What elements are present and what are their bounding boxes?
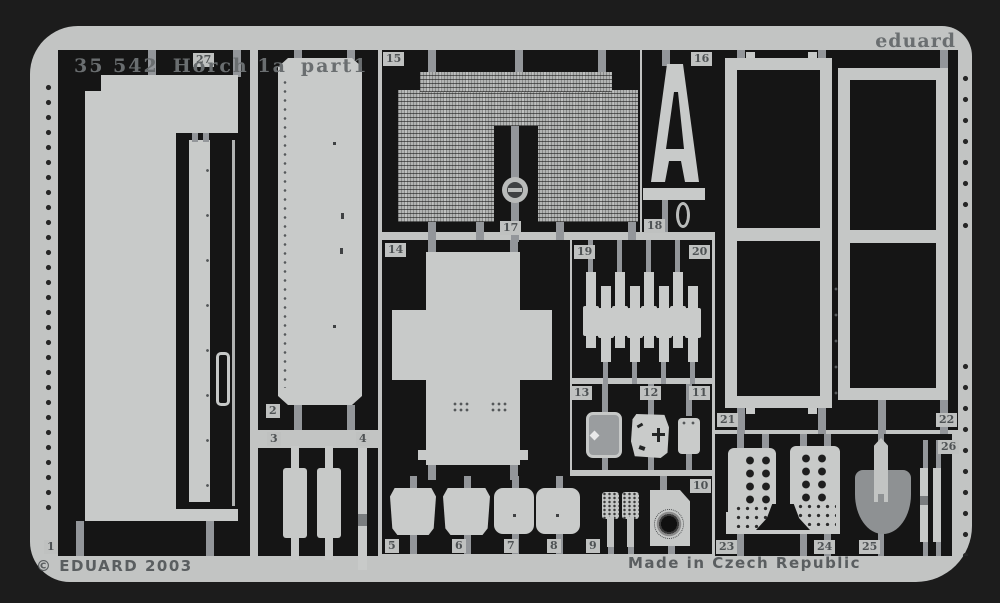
part-8-seat-pad xyxy=(536,488,580,534)
part-number-label-9: 9 xyxy=(586,539,600,553)
part-10-horn-plate xyxy=(650,490,690,546)
part-5-seat-pad xyxy=(390,488,436,535)
part-number-label-26: 26 xyxy=(938,440,959,454)
part-number-label-25: 25 xyxy=(859,540,880,554)
edge-rivets-left xyxy=(43,80,54,516)
part-3-cylinder-a xyxy=(283,468,307,538)
part-13-diamond-mark xyxy=(590,431,600,441)
part-number-label-10: 10 xyxy=(690,479,711,493)
part-26-strip-b xyxy=(933,468,941,542)
part-number-label-23: 23 xyxy=(716,540,737,554)
part-number-label-19: 19 xyxy=(574,245,595,259)
part-10-rivet-ring xyxy=(654,509,684,539)
edge-rivets-right-top xyxy=(960,68,971,230)
part-2-panel xyxy=(278,58,362,405)
part-2-rivet-marks xyxy=(282,78,288,388)
part-number-label-7: 7 xyxy=(504,539,518,553)
part-14-etch-marks-b xyxy=(490,401,508,413)
part-number-label-24: 24 xyxy=(814,540,835,554)
part-22-crossbar xyxy=(838,230,948,243)
part-21-crossbar xyxy=(725,228,832,241)
part-number-label-15: 15 xyxy=(383,52,404,66)
part-14-etch-marks-a xyxy=(452,401,470,413)
part-number-label-4: 4 xyxy=(356,432,370,446)
sheet: 35 542Horch 1apart1 eduard © EDUARD 2003… xyxy=(30,26,972,582)
product-part: part1 xyxy=(301,55,369,77)
edge-rivets-right-bottom xyxy=(960,356,971,556)
part-number-label-17: 17 xyxy=(500,221,521,235)
part-number-label-3: 3 xyxy=(267,432,281,446)
part-4-strip xyxy=(358,448,367,570)
brand-logo: eduard xyxy=(875,30,956,52)
part-number-label-22: 22 xyxy=(936,413,957,427)
part-16-a-frame xyxy=(648,64,702,188)
part-number-label-8: 8 xyxy=(547,539,561,553)
part-6-seat-pad xyxy=(443,488,490,535)
part-number-label-2: 2 xyxy=(266,404,280,418)
part-3-cylinder-b xyxy=(317,468,341,538)
part-25-pin-shadow xyxy=(878,494,884,518)
part-14-panel-arms xyxy=(392,310,552,380)
part-1-slot-sliver xyxy=(232,140,235,506)
part-number-label-6: 6 xyxy=(452,539,466,553)
part-number-label-12: 12 xyxy=(640,386,661,400)
part-number-label-11: 11 xyxy=(689,386,710,400)
fret-title: 35 542Horch 1apart1 xyxy=(74,55,383,77)
part-16-base-bar xyxy=(643,188,705,200)
part-17-disc-slot xyxy=(508,188,522,192)
frame-etch-marks xyxy=(833,276,839,406)
part-number-label-5: 5 xyxy=(385,539,399,553)
part-9-paddle-a xyxy=(602,492,619,519)
part-number-label-18: 18 xyxy=(644,219,665,233)
part-11-plate xyxy=(678,418,700,454)
product-code: 35 542 xyxy=(74,55,159,77)
part-27-rivet-marks xyxy=(205,148,210,498)
part-12-plate xyxy=(631,414,669,458)
part-number-label-21: 21 xyxy=(717,413,738,427)
photoetch-fret-photo: 35 542Horch 1apart1 eduard © EDUARD 2003… xyxy=(0,0,1000,603)
part-handle-bracket xyxy=(216,352,230,406)
part-9-paddle-b xyxy=(622,492,639,519)
part-number-label-13: 13 xyxy=(571,386,592,400)
made-in-text: Made in Czech Republic xyxy=(628,554,861,572)
part-number-label-20: 20 xyxy=(689,245,710,259)
copyright-text: © EDUARD 2003 xyxy=(36,557,193,575)
part-number-label-16: 16 xyxy=(691,52,712,66)
product-name: Horch 1a xyxy=(173,55,287,77)
part-number-label-14: 14 xyxy=(385,243,406,257)
part-18-ring xyxy=(676,202,690,228)
part-17-disc xyxy=(502,177,528,203)
part-7-seat-pad xyxy=(494,488,534,534)
part-13-door xyxy=(586,412,622,458)
part-26-strip-a xyxy=(920,468,928,542)
part-25-pin xyxy=(874,438,888,502)
part-number-label-1: 1 xyxy=(44,540,58,554)
part-15-grille-top xyxy=(420,72,612,92)
